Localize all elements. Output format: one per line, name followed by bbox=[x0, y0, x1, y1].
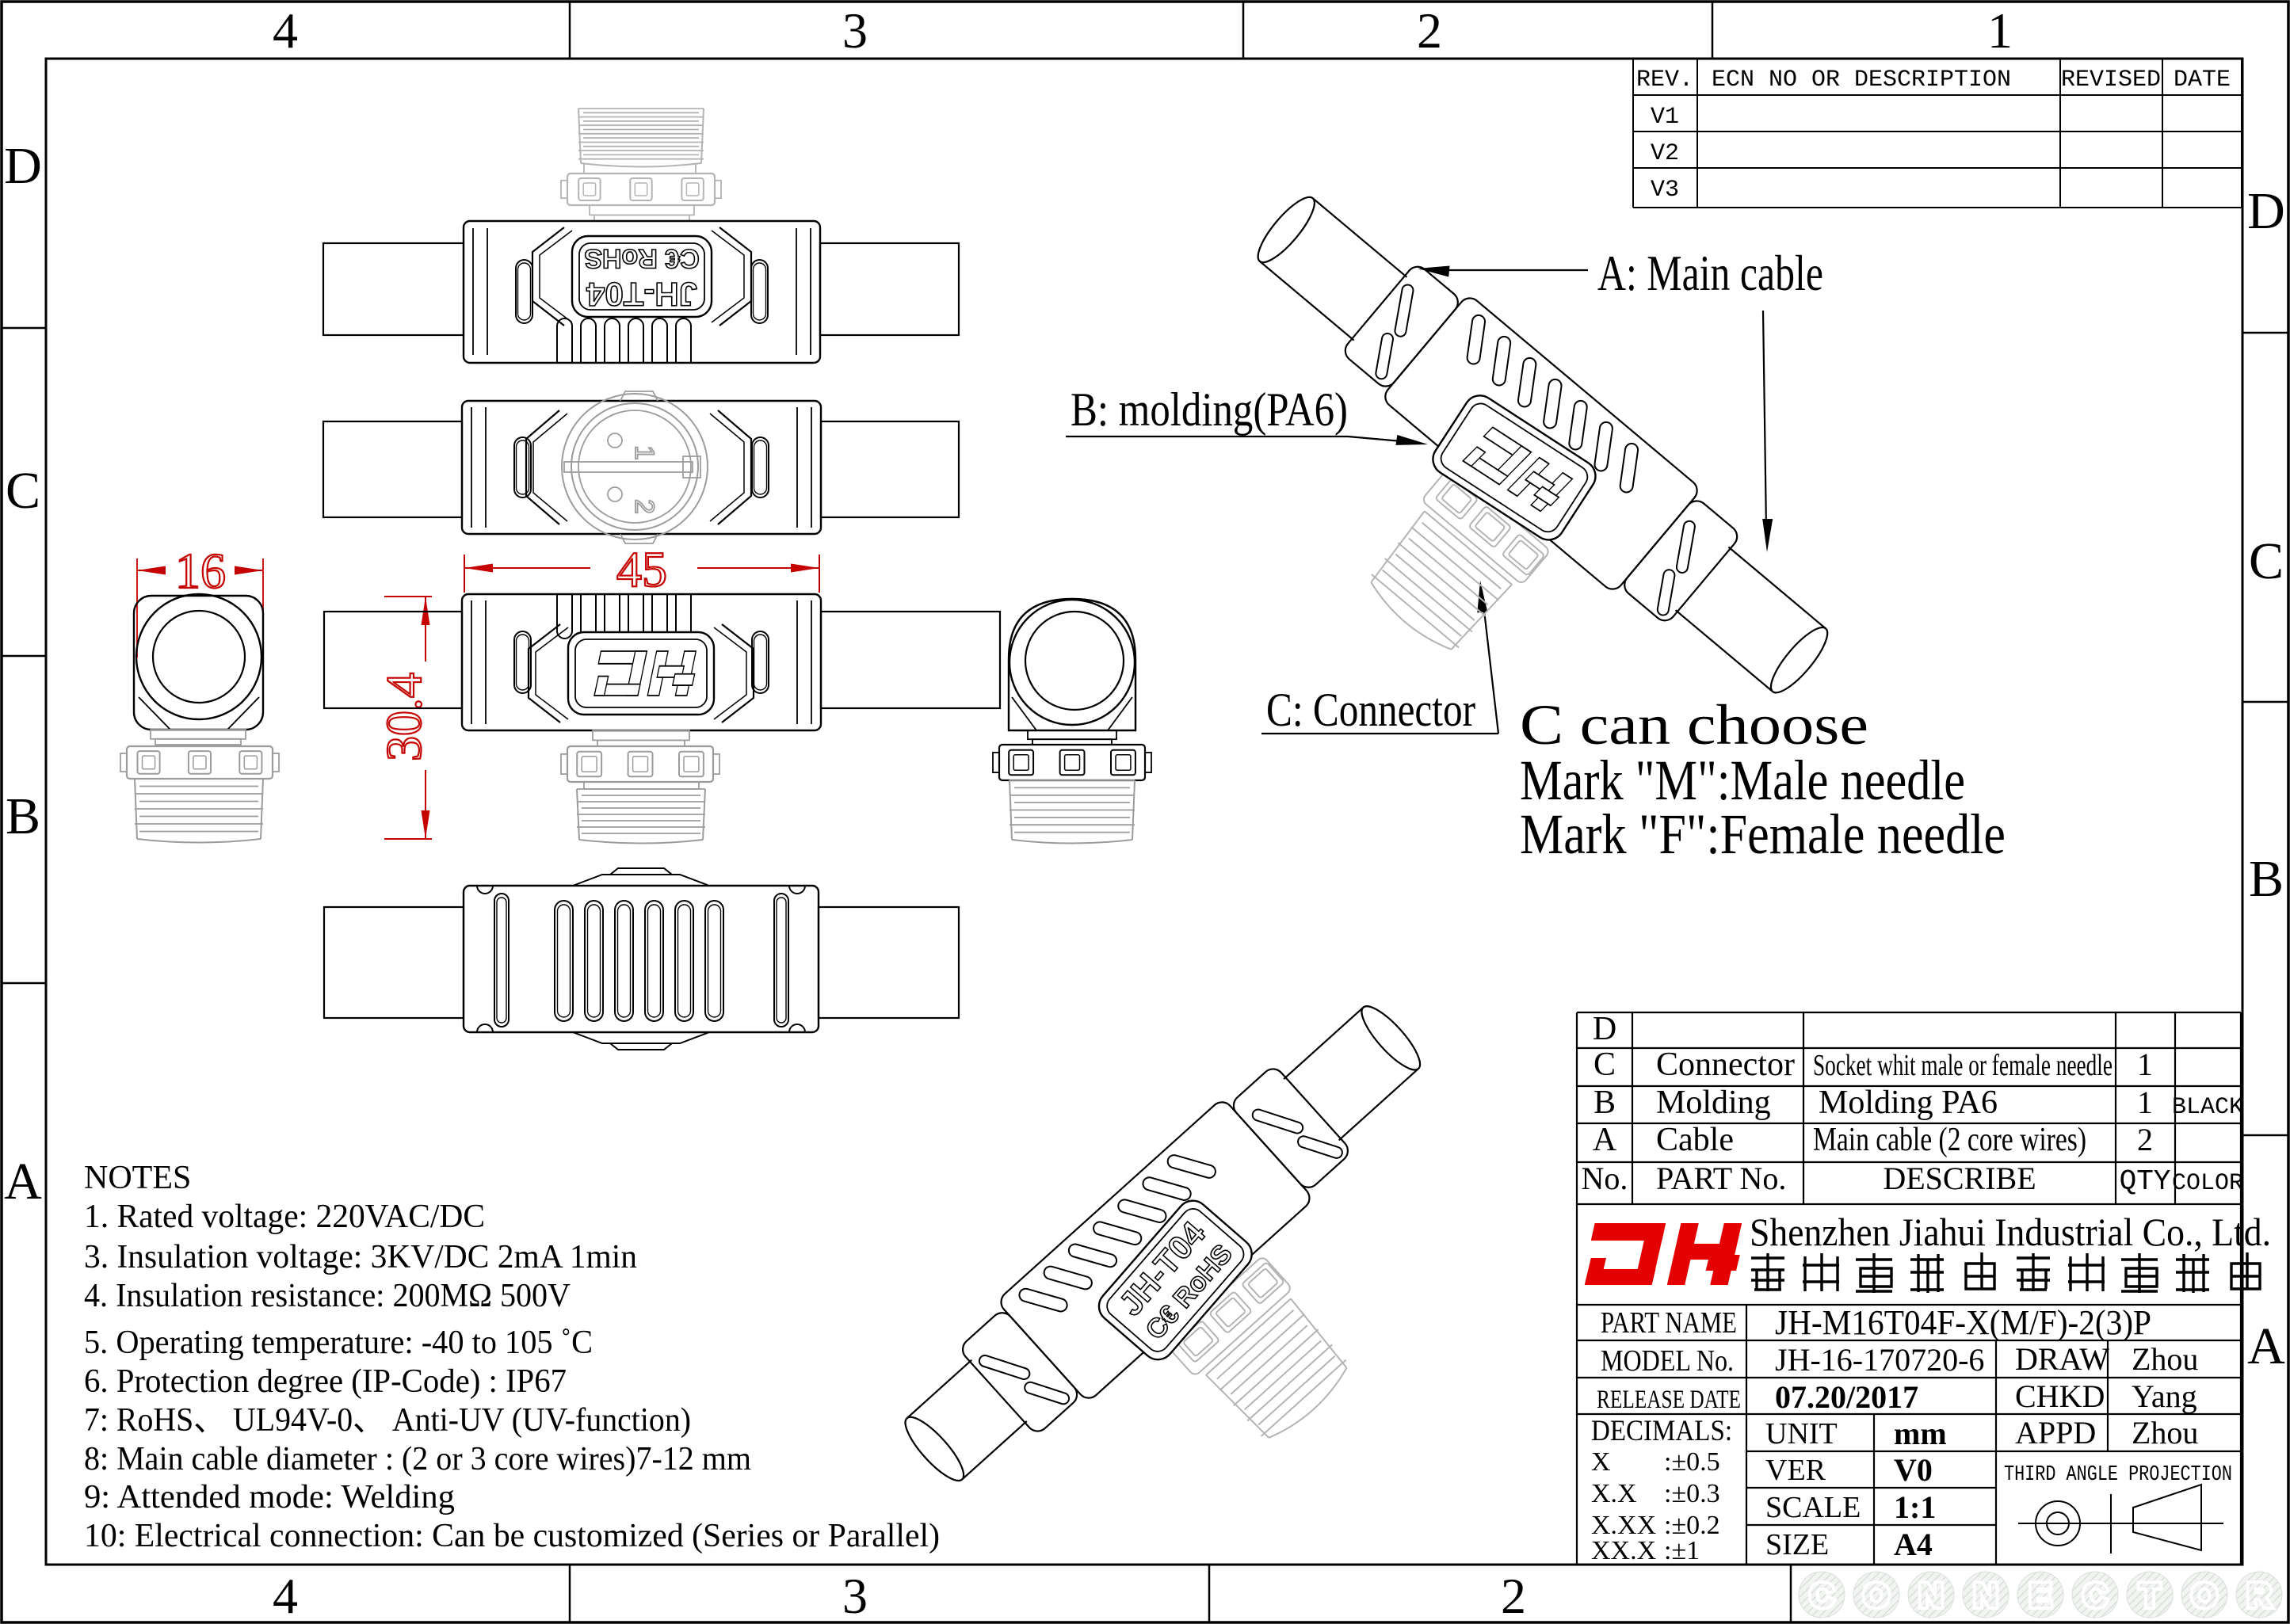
svg-text:A: A bbox=[4, 1153, 42, 1210]
svg-text:V0: V0 bbox=[1894, 1452, 1933, 1488]
svg-text:Main cable (2 core wires): Main cable (2 core wires) bbox=[1813, 1122, 2086, 1158]
svg-text:45: 45 bbox=[616, 541, 667, 597]
svg-text:C: C bbox=[1593, 1046, 1616, 1083]
svg-text:Molding: Molding bbox=[1656, 1085, 1771, 1121]
svg-text:B: B bbox=[1593, 1085, 1616, 1121]
svg-text:XX.X: XX.X bbox=[1591, 1536, 1656, 1565]
svg-text:C: Connector: C: Connector bbox=[1266, 684, 1475, 736]
svg-text:mm: mm bbox=[1894, 1416, 1947, 1451]
svg-text:C€ RoHS: C€ RoHS bbox=[584, 243, 699, 273]
svg-text:NOTES: NOTES bbox=[84, 1160, 191, 1196]
svg-text:6. Protection degree (IP-Code): 6. Protection degree (IP-Code) : IP67 bbox=[84, 1363, 567, 1400]
svg-text::±0.5: :±0.5 bbox=[1664, 1447, 1720, 1477]
svg-text:4: 4 bbox=[273, 2, 298, 59]
svg-text:2: 2 bbox=[1501, 1568, 1526, 1624]
svg-text:COLOR: COLOR bbox=[2172, 1170, 2243, 1197]
svg-text:VER: VER bbox=[1765, 1454, 1826, 1487]
svg-text::±0.3: :±0.3 bbox=[1664, 1479, 1720, 1508]
svg-text:PART No.: PART No. bbox=[1656, 1161, 1786, 1196]
svg-text:A: Main cable: A: Main cable bbox=[1597, 245, 1823, 301]
svg-text:Connector: Connector bbox=[1656, 1046, 1795, 1083]
svg-text:Cable: Cable bbox=[1656, 1122, 1734, 1158]
svg-text:A4: A4 bbox=[1894, 1527, 1933, 1562]
svg-text:Zhou: Zhou bbox=[2132, 1415, 2198, 1451]
svg-text:1. Rated voltage: 220VAC/DC: 1. Rated voltage: 220VAC/DC bbox=[84, 1199, 485, 1235]
svg-text:D: D bbox=[2247, 182, 2285, 240]
svg-text:Mark "F":Female needle: Mark "F":Female needle bbox=[1520, 802, 2006, 866]
svg-text:2: 2 bbox=[629, 499, 659, 514]
svg-text:JH-T04: JH-T04 bbox=[586, 276, 697, 313]
svg-text:9: Attended mode: Welding: 9: Attended mode: Welding bbox=[84, 1479, 455, 1515]
svg-text:SCALE: SCALE bbox=[1765, 1491, 1861, 1524]
svg-text:N: N bbox=[1919, 1576, 1943, 1614]
svg-text:V1: V1 bbox=[1651, 104, 1679, 131]
svg-text:C: C bbox=[2083, 1576, 2107, 1614]
svg-text:1: 1 bbox=[2137, 1085, 2153, 1120]
svg-text:B: molding(PA6): B: molding(PA6) bbox=[1071, 383, 1348, 436]
svg-text:APPD: APPD bbox=[2015, 1415, 2096, 1451]
svg-text:4: 4 bbox=[273, 1568, 298, 1624]
svg-text:16: 16 bbox=[175, 543, 226, 599]
svg-text:ECN NO OR DESCRIPTION: ECN NO OR DESCRIPTION bbox=[1712, 67, 2011, 93]
svg-text:JH-M16T04F-X(M/F)-2(3)P: JH-M16T04F-X(M/F)-2(3)P bbox=[1775, 1303, 2151, 1342]
svg-text:A: A bbox=[1593, 1122, 1617, 1158]
svg-text:10: Electrical connection: Ca: 10: Electrical connection: Can be custom… bbox=[84, 1518, 940, 1554]
svg-text:C: C bbox=[6, 462, 40, 520]
svg-text:UNIT: UNIT bbox=[1765, 1417, 1838, 1451]
svg-text:DECIMALS:: DECIMALS: bbox=[1591, 1415, 1732, 1447]
svg-text:O: O bbox=[2192, 1576, 2218, 1614]
svg-text:SIZE: SIZE bbox=[1765, 1528, 1829, 1561]
svg-text:4. Insulation resistance: 200M: 4. Insulation resistance: 200MΩ 500V bbox=[84, 1278, 571, 1314]
svg-text:2: 2 bbox=[1417, 2, 1442, 59]
svg-text:No.: No. bbox=[1582, 1161, 1628, 1196]
svg-text:Yang: Yang bbox=[2132, 1378, 2197, 1414]
svg-text:DATE: DATE bbox=[2174, 67, 2231, 93]
svg-text::±1: :±1 bbox=[1664, 1536, 1700, 1565]
svg-text:CHKD: CHKD bbox=[2015, 1378, 2105, 1414]
svg-text:C: C bbox=[2249, 532, 2284, 590]
svg-text:REVISED: REVISED bbox=[2061, 67, 2161, 93]
svg-text:JH-16-170720-6: JH-16-170720-6 bbox=[1775, 1342, 1984, 1378]
svg-text:X.X: X.X bbox=[1591, 1479, 1637, 1508]
svg-text:5. Operating temperature: -40: 5. Operating temperature: -40 to 105 ˚C bbox=[84, 1325, 593, 1361]
svg-text:Socket whit male or female ne: Socket whit male or female needle bbox=[1813, 1049, 2113, 1082]
svg-text:A: A bbox=[2247, 1317, 2285, 1375]
svg-text:D: D bbox=[4, 137, 42, 195]
svg-text:1: 1 bbox=[1987, 2, 2013, 59]
svg-text:C: C bbox=[1810, 1576, 1834, 1614]
svg-text:2: 2 bbox=[2137, 1122, 2153, 1157]
svg-text:MODEL No.: MODEL No. bbox=[1601, 1344, 1734, 1378]
svg-text:B: B bbox=[6, 787, 40, 845]
svg-text:Zhou: Zhou bbox=[2132, 1341, 2198, 1377]
svg-text:E: E bbox=[2029, 1576, 2051, 1614]
svg-text:3. Insulation voltage: 3KV/DC: 3. Insulation voltage: 3KV/DC 2mA 1min bbox=[84, 1239, 637, 1275]
svg-text:1: 1 bbox=[629, 445, 659, 460]
svg-text:C can choose: C can choose bbox=[1520, 693, 1868, 757]
svg-text:BLACK: BLACK bbox=[2172, 1094, 2243, 1121]
svg-text:30.4: 30.4 bbox=[376, 673, 432, 761]
svg-text:8: Main cable diameter : (2 or: 8: Main cable diameter : (2 or 3 core wi… bbox=[84, 1441, 751, 1477]
svg-text:Shenzhen Jiahui Industrial Co.: Shenzhen Jiahui Industrial Co., Ltd. bbox=[1750, 1210, 2271, 1254]
svg-text:B: B bbox=[2249, 850, 2284, 908]
svg-text:V3: V3 bbox=[1651, 177, 1679, 204]
svg-text:Molding PA6: Molding PA6 bbox=[1819, 1085, 1998, 1121]
svg-text:N: N bbox=[1974, 1576, 1998, 1614]
svg-text:PART NAME: PART NAME bbox=[1601, 1306, 1737, 1340]
svg-text:D: D bbox=[1593, 1011, 1616, 1047]
svg-text:3: 3 bbox=[842, 1568, 868, 1624]
svg-text:QTY: QTY bbox=[2120, 1165, 2171, 1198]
svg-text:T: T bbox=[2139, 1576, 2160, 1614]
svg-text:V2: V2 bbox=[1651, 140, 1679, 167]
svg-text:DESCRIBE: DESCRIBE bbox=[1883, 1161, 2036, 1196]
svg-text:1: 1 bbox=[2137, 1046, 2153, 1082]
svg-text:07.20/2017: 07.20/2017 bbox=[1775, 1379, 1918, 1415]
svg-text:3: 3 bbox=[842, 2, 868, 59]
svg-text:X: X bbox=[1591, 1447, 1611, 1477]
svg-text:O: O bbox=[1864, 1576, 1890, 1614]
svg-text:THIRD ANGLE PROJECTION: THIRD ANGLE PROJECTION bbox=[2004, 1463, 2232, 1487]
svg-text:DRAW: DRAW bbox=[2015, 1341, 2109, 1377]
svg-text:1:1: 1:1 bbox=[1894, 1489, 1936, 1525]
svg-text:R: R bbox=[2247, 1576, 2271, 1614]
svg-text:REV.: REV. bbox=[1636, 67, 1693, 93]
svg-text:7: RoHS、 UL94V-0、 Anti-UV (UV-: 7: RoHS、 UL94V-0、 Anti-UV (UV-function) bbox=[84, 1402, 691, 1439]
svg-text:RELEASE DATE: RELEASE DATE bbox=[1597, 1386, 1741, 1414]
